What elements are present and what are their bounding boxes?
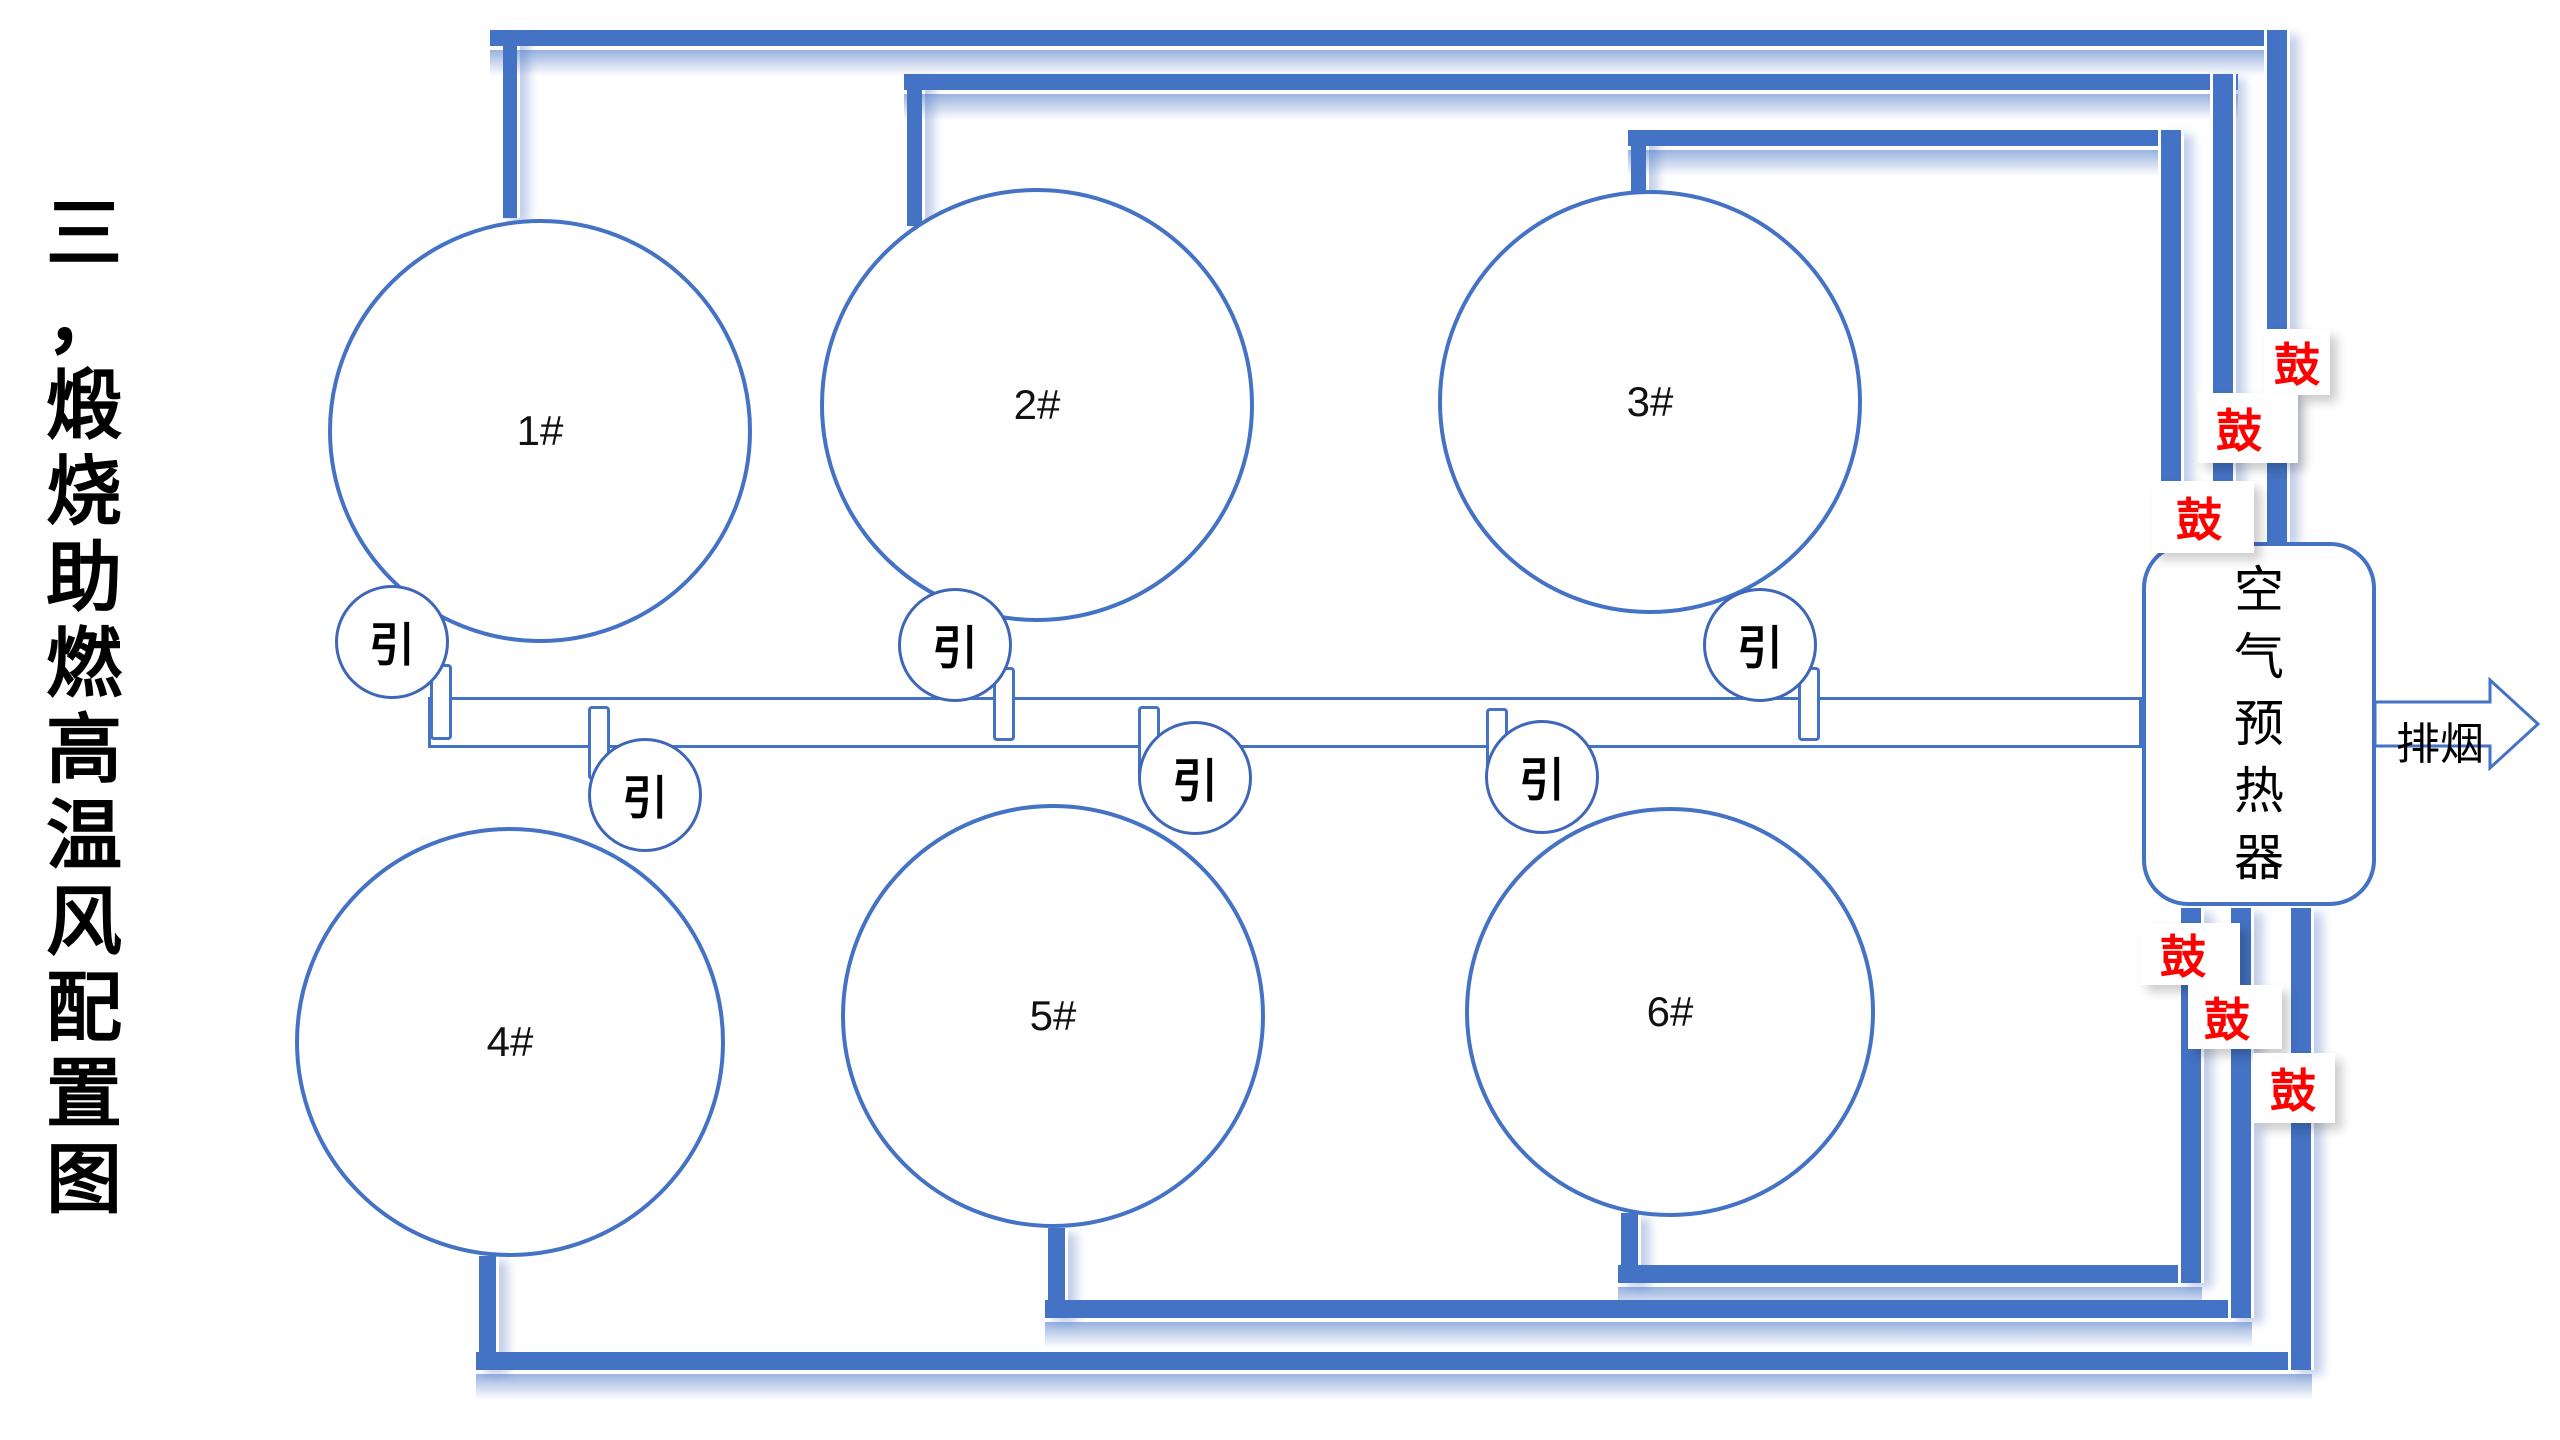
preheater-char: 空 bbox=[2234, 557, 2284, 624]
preheater-char: 气 bbox=[2234, 624, 2284, 691]
kiln-circle-6: 6# bbox=[1465, 807, 1875, 1217]
induced-fan-label: 引 bbox=[1737, 612, 1783, 678]
induced-fan-label: 引 bbox=[622, 762, 668, 828]
induced-fan-label: 引 bbox=[1519, 744, 1565, 810]
induced-fan-2: 引 bbox=[898, 588, 1012, 702]
title-char: 置 bbox=[46, 1052, 122, 1138]
forced-fan-6: 鼓 bbox=[2253, 1053, 2335, 1123]
forced-fan-label: 鼓 bbox=[2216, 395, 2262, 461]
kiln-circle-3: 3# bbox=[1438, 190, 1862, 614]
induced-fan-6: 引 bbox=[1485, 720, 1599, 834]
induced-fan-label: 引 bbox=[369, 609, 415, 675]
induced-fan-3: 引 bbox=[1703, 588, 1817, 702]
induced-fan-label: 引 bbox=[932, 612, 978, 678]
forced-fan-label: 鼓 bbox=[2274, 329, 2320, 395]
pipe-kiln2-horizontal bbox=[904, 74, 2238, 90]
forced-fan-1: 鼓 bbox=[2264, 329, 2330, 395]
pipe-kiln5-horizontal bbox=[1045, 1300, 2252, 1318]
title-char: 配 bbox=[46, 966, 122, 1052]
forced-fan-label: 鼓 bbox=[2270, 1055, 2316, 1121]
kiln-circle-2: 2# bbox=[820, 188, 1254, 622]
title-char: 三 bbox=[46, 192, 122, 278]
pipe-kiln3-drop bbox=[2158, 130, 2184, 486]
title-char: 烧 bbox=[46, 450, 122, 536]
pipe-kiln3-horizontal bbox=[1628, 130, 2184, 146]
pipe-kiln4-horizontal bbox=[476, 1352, 2312, 1370]
title-char: 图 bbox=[46, 1138, 122, 1224]
preheater-char: 热 bbox=[2234, 758, 2284, 825]
title-char: ， bbox=[46, 278, 122, 364]
title-char: 高 bbox=[46, 708, 122, 794]
forced-fan-2: 鼓 bbox=[2198, 393, 2298, 463]
title-char: 风 bbox=[46, 880, 122, 966]
kiln-label: 6# bbox=[1647, 988, 1694, 1036]
forced-fan-label: 鼓 bbox=[2204, 984, 2250, 1050]
page-title: 三 ， 煅 烧 助 燃 高 温 风 配 置 图 bbox=[36, 192, 132, 1224]
kiln-label: 5# bbox=[1030, 992, 1077, 1040]
pipe-kiln4-up bbox=[2288, 908, 2314, 1370]
diagram-canvas: 三 ， 煅 烧 助 燃 高 温 风 配 置 图 1# 2# 3# 4 bbox=[0, 0, 2560, 1440]
pipe-kiln6-horizontal bbox=[1618, 1265, 2202, 1283]
exhaust-label: 排烟 bbox=[2388, 708, 2492, 772]
pipe-kiln1-drop bbox=[2264, 30, 2290, 542]
forced-fan-label: 鼓 bbox=[2176, 484, 2222, 550]
forced-fan-4: 鼓 bbox=[2140, 923, 2240, 985]
induced-fan-label: 引 bbox=[1172, 745, 1218, 811]
kiln-circle-4: 4# bbox=[295, 827, 725, 1257]
preheater-char: 器 bbox=[2234, 825, 2284, 892]
air-preheater-box: 空 气 预 热 器 bbox=[2142, 542, 2376, 906]
kiln-circle-5: 5# bbox=[841, 804, 1265, 1228]
kiln-label: 1# bbox=[517, 407, 564, 455]
forced-fan-label: 鼓 bbox=[2160, 921, 2206, 987]
preheater-char: 预 bbox=[2234, 691, 2284, 758]
kiln-label: 2# bbox=[1014, 381, 1061, 429]
kiln-label: 4# bbox=[487, 1018, 534, 1066]
title-char: 煅 bbox=[46, 364, 122, 450]
induced-fan-1: 引 bbox=[335, 585, 449, 699]
forced-fan-3: 鼓 bbox=[2152, 481, 2254, 553]
pipe-kiln1-horizontal bbox=[490, 30, 2290, 46]
kiln-label: 3# bbox=[1627, 378, 1674, 426]
induced-fan-4: 引 bbox=[588, 738, 702, 852]
title-char: 温 bbox=[46, 794, 122, 880]
main-flue-duct bbox=[428, 697, 2142, 748]
title-char: 助 bbox=[46, 536, 122, 622]
title-char: 燃 bbox=[46, 622, 122, 708]
kiln-circle-1: 1# bbox=[328, 219, 752, 643]
forced-fan-5: 鼓 bbox=[2188, 985, 2282, 1049]
induced-fan-5: 引 bbox=[1138, 721, 1252, 835]
